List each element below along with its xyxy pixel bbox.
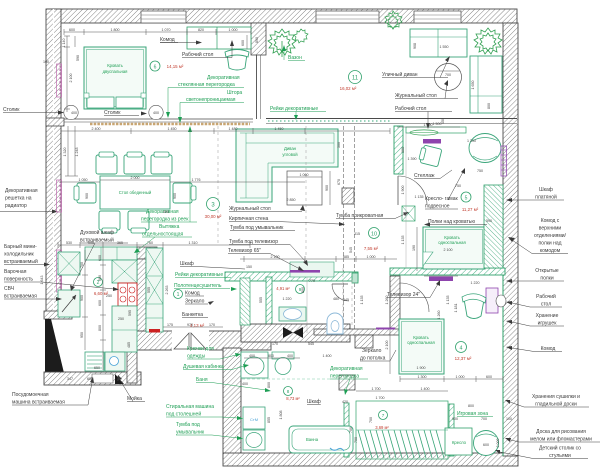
svg-text:1 070: 1 070 bbox=[162, 28, 171, 32]
svg-text:8: 8 bbox=[287, 389, 290, 394]
svg-text:100: 100 bbox=[43, 60, 49, 64]
svg-text:Стол обеденный: Стол обеденный bbox=[119, 190, 152, 195]
svg-text:гладильной доски: гладильной доски bbox=[535, 401, 577, 408]
svg-text:Ванна: Ванна bbox=[306, 437, 319, 442]
svg-text:800: 800 bbox=[301, 287, 305, 293]
svg-text:Рабочий стол: Рабочий стол bbox=[182, 51, 213, 58]
svg-text:590: 590 bbox=[76, 55, 80, 61]
svg-text:995: 995 bbox=[88, 241, 94, 245]
svg-text:30,00 м²: 30,00 м² bbox=[205, 214, 222, 219]
svg-text:Кресло: Кресло bbox=[452, 440, 467, 445]
svg-text:650: 650 bbox=[94, 366, 100, 370]
svg-text:1 776: 1 776 bbox=[192, 178, 201, 182]
svg-text:900: 900 bbox=[325, 185, 329, 191]
svg-text:Вазон: Вазон bbox=[288, 55, 302, 61]
svg-text:2 000: 2 000 bbox=[496, 439, 500, 448]
svg-text:800: 800 bbox=[267, 382, 271, 388]
svg-text:Тумба прикроватная: Тумба прикроватная bbox=[336, 213, 384, 219]
svg-text:Посудомоечная: Посудомоечная bbox=[12, 392, 49, 398]
svg-text:700: 700 bbox=[349, 427, 353, 433]
svg-text:400: 400 bbox=[249, 354, 255, 358]
svg-text:1 220: 1 220 bbox=[283, 297, 292, 301]
svg-text:595: 595 bbox=[128, 310, 132, 316]
svg-text:555: 555 bbox=[259, 297, 263, 303]
svg-text:1 260: 1 260 bbox=[437, 311, 441, 320]
svg-text:Барный мини-: Барный мини- bbox=[4, 243, 37, 250]
svg-text:поверхность: поверхность bbox=[4, 277, 33, 283]
svg-text:600: 600 bbox=[98, 255, 102, 261]
svg-text:600: 600 bbox=[69, 28, 75, 32]
svg-text:1 390: 1 390 bbox=[408, 157, 417, 161]
svg-text:Рабочий стол: Рабочий стол bbox=[395, 105, 426, 112]
svg-text:СВЧ: СВЧ bbox=[4, 286, 14, 292]
svg-text:1 000: 1 000 bbox=[229, 28, 238, 32]
svg-text:890: 890 bbox=[255, 37, 259, 43]
svg-text:Штора: Штора bbox=[227, 90, 242, 96]
svg-text:стол: стол bbox=[541, 302, 551, 308]
svg-text:2 100: 2 100 bbox=[271, 255, 280, 259]
svg-text:600: 600 bbox=[87, 377, 93, 381]
svg-text:Тумба под: Тумба под bbox=[176, 422, 200, 428]
svg-text:1 260: 1 260 bbox=[385, 296, 389, 305]
svg-text:1 900: 1 900 bbox=[417, 366, 426, 370]
svg-text:800: 800 bbox=[468, 404, 474, 408]
svg-text:4,91 м²: 4,91 м² bbox=[276, 286, 290, 291]
svg-text:600: 600 bbox=[241, 40, 245, 46]
svg-text:175: 175 bbox=[167, 323, 173, 327]
svg-text:1 650: 1 650 bbox=[471, 81, 475, 90]
svg-text:Шкаф: Шкаф bbox=[539, 187, 553, 193]
svg-text:800: 800 bbox=[268, 354, 274, 358]
svg-text:Декоративная: Декоративная bbox=[330, 366, 363, 372]
svg-text:2 850: 2 850 bbox=[287, 198, 296, 202]
svg-text:Диван: Диван bbox=[284, 146, 297, 151]
svg-text:1 400: 1 400 bbox=[421, 387, 430, 391]
svg-text:970: 970 bbox=[187, 323, 193, 327]
svg-text:1 480: 1 480 bbox=[229, 127, 238, 131]
svg-text:Полки над кроватью: Полки над кроватью bbox=[428, 219, 475, 225]
svg-text:545: 545 bbox=[308, 342, 314, 346]
svg-text:Столик: Столик bbox=[3, 107, 20, 113]
svg-text:Стеллаж: Стеллаж bbox=[414, 173, 435, 179]
svg-text:7: 7 bbox=[382, 413, 385, 418]
svg-text:Комод: Комод bbox=[541, 346, 556, 352]
svg-text:Столик: Столик bbox=[104, 110, 121, 116]
svg-text:600: 600 bbox=[486, 375, 492, 379]
svg-text:Кровать: Кровать bbox=[107, 63, 123, 68]
svg-text:2 100: 2 100 bbox=[385, 341, 389, 350]
svg-text:1 700: 1 700 bbox=[372, 387, 381, 391]
svg-text:СтМ: СтМ bbox=[250, 417, 258, 422]
svg-text:450: 450 bbox=[163, 210, 169, 214]
svg-text:170: 170 bbox=[209, 323, 215, 327]
svg-text:Кирпичная стена: Кирпичная стена bbox=[229, 216, 269, 222]
svg-text:908: 908 bbox=[413, 43, 417, 49]
svg-text:100: 100 bbox=[506, 417, 512, 421]
svg-text:стульями: стульями bbox=[549, 453, 571, 459]
svg-text:700: 700 bbox=[80, 262, 84, 268]
svg-text:11,27 м²: 11,27 м² bbox=[462, 207, 479, 212]
svg-text:одежды: одежды bbox=[187, 354, 206, 360]
svg-text:Шкаф: Шкаф bbox=[180, 261, 194, 267]
svg-text:Мойка: Мойка bbox=[127, 395, 142, 402]
svg-text:перегородка: перегородка bbox=[330, 374, 359, 380]
svg-text:под столешней: под столешней bbox=[166, 411, 201, 418]
svg-text:Телевизор 65": Телевизор 65" bbox=[228, 248, 261, 254]
svg-text:1 700: 1 700 bbox=[376, 396, 385, 400]
svg-text:250: 250 bbox=[106, 294, 112, 298]
svg-text:Декоративная: Декоративная bbox=[207, 75, 240, 81]
svg-text:770: 770 bbox=[309, 279, 315, 283]
svg-text:комодом: комодом bbox=[540, 248, 561, 254]
svg-text:1 500: 1 500 bbox=[424, 123, 433, 127]
svg-text:Тумба под телевизор: Тумба под телевизор bbox=[229, 239, 278, 245]
svg-text:150: 150 bbox=[246, 265, 252, 269]
svg-text:16,02 м²: 16,02 м² bbox=[340, 86, 357, 91]
svg-text:Зеркало: Зеркало bbox=[362, 348, 382, 354]
svg-text:Стиральная машина: Стиральная машина bbox=[166, 404, 214, 410]
svg-text:685: 685 bbox=[343, 255, 349, 259]
svg-text:1 808: 1 808 bbox=[279, 411, 283, 420]
svg-text:190: 190 bbox=[412, 245, 416, 251]
svg-text:590: 590 bbox=[486, 219, 492, 223]
svg-text:отдельностоящая: отдельностоящая bbox=[142, 232, 184, 238]
svg-text:встраиваемый: встраиваемый bbox=[80, 237, 114, 244]
svg-text:500: 500 bbox=[337, 142, 341, 148]
svg-text:1 900: 1 900 bbox=[401, 186, 405, 195]
svg-text:Духовой шкаф: Духовой шкаф bbox=[80, 229, 114, 236]
svg-text:2 100: 2 100 bbox=[444, 248, 453, 252]
svg-text:10: 10 bbox=[371, 231, 377, 237]
svg-text:347: 347 bbox=[67, 377, 73, 381]
svg-text:11: 11 bbox=[352, 76, 359, 82]
svg-text:760: 760 bbox=[147, 241, 153, 245]
svg-text:радиатор: радиатор bbox=[5, 203, 27, 209]
svg-text:1 550: 1 550 bbox=[440, 45, 449, 49]
svg-text:1 800: 1 800 bbox=[111, 28, 120, 32]
svg-text:5: 5 bbox=[465, 195, 468, 201]
svg-text:Доска для рисования: Доска для рисования bbox=[536, 429, 586, 435]
svg-text:600: 600 bbox=[98, 300, 102, 306]
svg-text:8,73 м²: 8,73 м² bbox=[286, 396, 300, 401]
svg-text:600: 600 bbox=[483, 443, 489, 447]
svg-text:750: 750 bbox=[477, 169, 483, 173]
svg-text:2 100: 2 100 bbox=[69, 74, 73, 83]
svg-text:450: 450 bbox=[441, 118, 445, 124]
svg-text:1 643: 1 643 bbox=[40, 276, 44, 285]
svg-text:485: 485 bbox=[127, 342, 131, 348]
svg-text:до потолка: до потолка bbox=[360, 356, 386, 362]
svg-text:Баня: Баня bbox=[196, 377, 208, 383]
svg-text:встраиваемая: встраиваемая bbox=[4, 294, 37, 300]
svg-text:545: 545 bbox=[343, 298, 349, 302]
svg-text:Комод с: Комод с bbox=[541, 218, 560, 224]
svg-text:Декоративная: Декоративная bbox=[5, 188, 38, 194]
svg-text:Тумба под умывальник: Тумба под умывальник bbox=[230, 225, 284, 231]
svg-text:2 000: 2 000 bbox=[131, 176, 140, 180]
svg-text:Зеркало: Зеркало bbox=[185, 299, 205, 305]
svg-text:900: 900 bbox=[452, 417, 458, 421]
svg-text:Кресло- гамак: Кресло- гамак bbox=[425, 196, 458, 202]
svg-text:600: 600 bbox=[98, 275, 102, 281]
svg-text:400: 400 bbox=[71, 111, 77, 115]
svg-text:светонепроницаемая: светонепроницаемая bbox=[186, 97, 236, 103]
svg-text:170: 170 bbox=[272, 342, 278, 346]
svg-text:1 390: 1 390 bbox=[467, 139, 476, 143]
svg-text:встраиваемый: встраиваемый bbox=[4, 258, 38, 265]
svg-text:Хранения сушилки и: Хранения сушилки и bbox=[532, 394, 580, 400]
svg-text:1 135: 1 135 bbox=[446, 296, 450, 305]
svg-text:полки: полки bbox=[540, 276, 553, 282]
svg-text:820: 820 bbox=[198, 28, 204, 32]
svg-text:Журнальный стол: Журнальный стол bbox=[395, 92, 437, 99]
svg-text:1 135: 1 135 bbox=[360, 296, 364, 305]
svg-text:855: 855 bbox=[267, 417, 271, 423]
svg-text:900: 900 bbox=[85, 193, 89, 199]
svg-text:односпальная: односпальная bbox=[407, 340, 435, 345]
svg-text:решетка на: решетка на bbox=[5, 196, 32, 202]
svg-text:двуспальная: двуспальная bbox=[103, 69, 128, 74]
svg-text:стеклянная перегородка: стеклянная перегородка bbox=[178, 82, 235, 88]
svg-text:700: 700 bbox=[445, 73, 451, 77]
svg-text:555: 555 bbox=[147, 287, 151, 293]
svg-text:1 300: 1 300 bbox=[418, 375, 427, 379]
svg-text:700: 700 bbox=[369, 417, 373, 423]
svg-text:Банкетка: Банкетка bbox=[182, 312, 203, 318]
svg-text:платяной: платяной bbox=[535, 194, 557, 201]
svg-text:1 181: 1 181 bbox=[454, 304, 458, 313]
svg-text:315: 315 bbox=[354, 232, 360, 236]
svg-text:машина встраиваемая: машина встраиваемая bbox=[12, 400, 65, 406]
svg-text:полки над: полки над bbox=[538, 241, 561, 247]
svg-text:Рейки декоративные: Рейки декоративные bbox=[175, 271, 223, 278]
svg-text:400: 400 bbox=[242, 382, 248, 386]
svg-text:800: 800 bbox=[98, 325, 102, 331]
svg-text:2 400: 2 400 bbox=[92, 127, 101, 131]
svg-text:подвесное: подвесное bbox=[425, 204, 450, 210]
svg-text:1 000: 1 000 bbox=[456, 375, 465, 379]
svg-text:250: 250 bbox=[118, 317, 124, 321]
svg-text:1 450: 1 450 bbox=[168, 127, 177, 131]
svg-text:2 263: 2 263 bbox=[165, 286, 169, 295]
svg-text:перегородка из реек: перегородка из реек bbox=[141, 217, 189, 223]
svg-text:530: 530 bbox=[66, 241, 72, 245]
svg-text:14,15 м²: 14,15 м² bbox=[167, 64, 184, 69]
svg-text:Комод: Комод bbox=[185, 291, 200, 297]
svg-text:игрушек: игрушек bbox=[538, 321, 558, 327]
svg-text:Душевая кабинка: Душевая кабинка bbox=[183, 364, 224, 370]
svg-text:750: 750 bbox=[455, 184, 461, 188]
svg-text:Комод: Комод bbox=[160, 37, 175, 43]
svg-text:365: 365 bbox=[117, 241, 123, 245]
svg-text:угловой: угловой bbox=[282, 152, 298, 157]
svg-text:1 135: 1 135 bbox=[415, 195, 424, 199]
svg-text:1: 1 bbox=[177, 292, 180, 298]
svg-text:Шкаф: Шкаф bbox=[307, 399, 321, 405]
svg-text:700: 700 bbox=[481, 417, 487, 421]
svg-text:900: 900 bbox=[173, 193, 177, 199]
svg-text:Варочная: Варочная bbox=[4, 269, 27, 275]
svg-text:1 320: 1 320 bbox=[63, 148, 67, 157]
svg-text:отделениями/: отделениями/ bbox=[534, 233, 567, 239]
svg-text:700: 700 bbox=[354, 437, 358, 443]
svg-text:Рейки декоративные: Рейки декоративные bbox=[270, 105, 318, 112]
svg-text:верхними: верхними bbox=[539, 226, 562, 232]
svg-text:3,69 м²: 3,69 м² bbox=[375, 425, 389, 430]
svg-text:1 135: 1 135 bbox=[401, 236, 405, 245]
svg-text:Детский столик со: Детский столик со bbox=[539, 445, 581, 452]
svg-text:400: 400 bbox=[287, 354, 293, 358]
svg-text:900: 900 bbox=[80, 295, 84, 301]
svg-text:Уличный диван: Уличный диван bbox=[382, 71, 418, 78]
svg-text:1 000: 1 000 bbox=[367, 255, 376, 259]
svg-text:умывальник: умывальник bbox=[176, 430, 205, 436]
svg-text:1 310: 1 310 bbox=[189, 241, 198, 245]
svg-text:Крючки для: Крючки для bbox=[187, 346, 214, 352]
svg-text:односпальная: односпальная bbox=[438, 240, 466, 245]
svg-text:Хранение: Хранение bbox=[536, 313, 559, 319]
svg-text:1 140: 1 140 bbox=[62, 39, 66, 48]
svg-text:1 248: 1 248 bbox=[75, 148, 79, 157]
svg-text:1 400: 1 400 bbox=[323, 354, 332, 358]
svg-text:1 060: 1 060 bbox=[300, 173, 309, 177]
svg-text:1 220: 1 220 bbox=[471, 281, 480, 285]
svg-text:7,55 м²: 7,55 м² bbox=[364, 246, 379, 251]
svg-text:1 500: 1 500 bbox=[433, 122, 442, 126]
svg-text:300: 300 bbox=[401, 147, 405, 153]
svg-text:Открытые: Открытые bbox=[535, 268, 559, 274]
svg-text:Вытяжка: Вытяжка bbox=[159, 224, 180, 230]
svg-text:Телевизор 24": Телевизор 24" bbox=[387, 292, 420, 298]
svg-text:4: 4 bbox=[460, 345, 463, 351]
svg-text:6: 6 bbox=[154, 64, 157, 70]
svg-text:800: 800 bbox=[487, 103, 491, 109]
svg-text:670: 670 bbox=[337, 179, 341, 185]
svg-text:Рабочий: Рабочий bbox=[536, 293, 556, 300]
svg-text:480: 480 bbox=[333, 297, 339, 301]
svg-text:мелом или фломастерами: мелом или фломастерами bbox=[530, 437, 592, 443]
svg-text:Журнальный стол: Журнальный стол bbox=[229, 205, 271, 212]
svg-text:400: 400 bbox=[153, 111, 159, 115]
svg-text:545: 545 bbox=[349, 247, 353, 253]
svg-text:1 050: 1 050 bbox=[79, 178, 88, 182]
svg-text:12,37 м²: 12,37 м² bbox=[455, 356, 472, 361]
svg-text:950: 950 bbox=[80, 332, 84, 338]
svg-text:420: 420 bbox=[342, 400, 348, 404]
svg-text:Полотенцесушитель: Полотенцесушитель bbox=[174, 283, 222, 289]
svg-text:холодильник: холодильник bbox=[4, 252, 35, 258]
svg-text:1 450: 1 450 bbox=[275, 127, 284, 131]
